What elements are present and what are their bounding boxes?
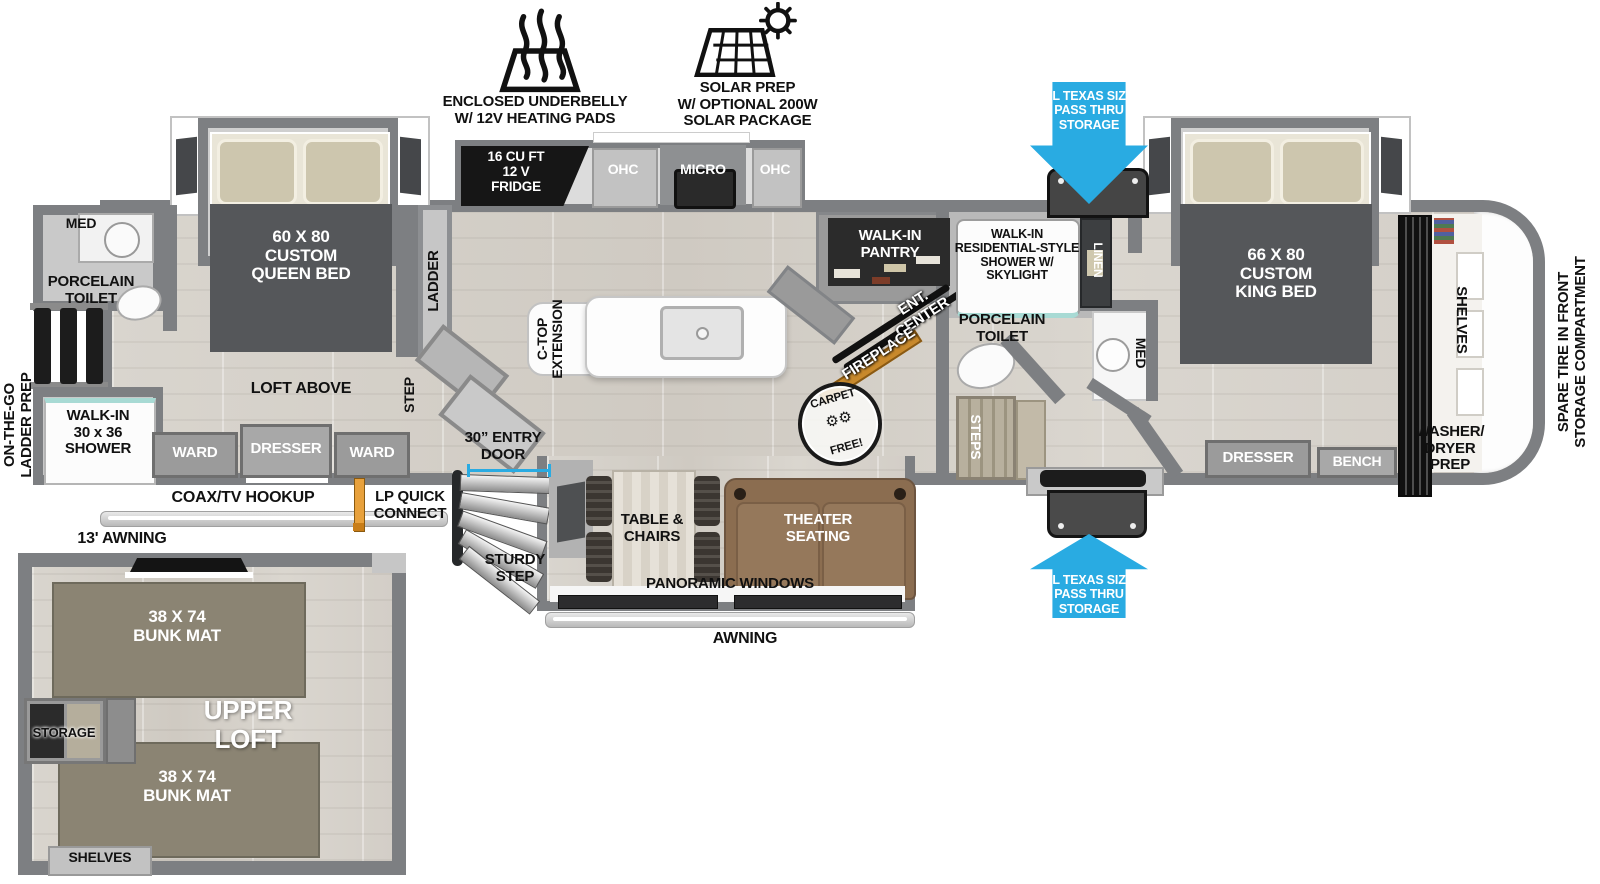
front-dresser: DRESSER [1205, 440, 1311, 478]
table-chairs-label: TABLE & CHAIRS [602, 512, 702, 545]
on-the-go-label: ON-THE-GO LADDER PREP [2, 339, 38, 511]
ohc-left-label: OHC [592, 162, 654, 177]
front-toilet-label: PORCELAIN TOILET [946, 312, 1058, 345]
queen-bed-label: 60 X 80 CUSTOM QUEEN BED [226, 228, 376, 284]
linen-label: LINEN [1084, 230, 1104, 290]
loft-window [130, 558, 248, 572]
ward-left-label: WARD [155, 445, 235, 462]
ohc-right [752, 148, 802, 208]
lp-connector-icon [354, 478, 365, 532]
panoramic-window-right [734, 595, 902, 609]
front-med-sink [1096, 338, 1130, 372]
queen-room-wall-left [163, 205, 177, 331]
sturdy-step-label: STURDY STEP [470, 552, 560, 585]
solar-prep-icon [694, 2, 798, 80]
step-label: STEP [402, 356, 420, 434]
ward-left: WARD [152, 432, 238, 478]
coax-label: COAX/TV HOOKUP [168, 489, 318, 507]
front-shower-label: WALK-IN RESIDENTIAL-STYLE SHOWER W/ SKYL… [952, 228, 1082, 283]
bench-label: BENCH [1320, 454, 1394, 469]
queen-pillow-right [303, 139, 383, 205]
cupholder-icon [894, 488, 906, 500]
loft-storage-label: STORAGE [22, 726, 106, 740]
heating-pads-icon [492, 6, 588, 94]
pass-thru-compartment-bottom [1047, 490, 1147, 538]
counter-top-trim [593, 132, 750, 143]
bench: BENCH [1317, 447, 1397, 478]
pantry-item [834, 269, 860, 278]
king-pillow-left [1190, 139, 1274, 205]
sink-drain [696, 327, 709, 340]
entry-door-measure-line [468, 469, 550, 472]
pantry-label: WALK-IN PANTRY [836, 228, 944, 261]
rear-shower-label: WALK-IN 30 x 36 SHOWER [40, 408, 156, 458]
loft-window-sill [125, 572, 253, 578]
pantry-item [884, 264, 906, 272]
rear-med-label: MED [52, 216, 110, 231]
front-dresser-label: DRESSER [1208, 450, 1308, 467]
ward-right-label: WARD [337, 445, 407, 462]
underbelly-label: ENCLOSED UNDERBELLY W/ 12V HEATING PADS [425, 94, 645, 127]
theater-label: THEATER SEATING [768, 512, 868, 545]
front-med-label: MED [1130, 326, 1148, 380]
ward-right: WARD [334, 432, 410, 478]
upper-loft-label: UPPER LOFT [178, 696, 318, 753]
queen-slide-window-right [400, 137, 421, 196]
rear-ladder-bars [30, 303, 108, 389]
queen-slide-window-left [176, 137, 197, 196]
washer-dryer-label: WASHER/ DRYER PREP [1398, 424, 1502, 474]
solar-label: SOLAR PREP W/ OPTIONAL 200W SOLAR PACKAG… [650, 80, 845, 130]
pass-thru-arrow-bottom: XL TEXAS SIZE PASS THRU STORAGE [1030, 534, 1148, 618]
ladder-label: LADDER [426, 234, 444, 328]
bunk-bottom-label: 38 X 74 BUNK MAT [122, 768, 252, 805]
rear-toilet-label: PORCELAIN TOILET [28, 274, 154, 307]
cupholder-icon [734, 488, 746, 500]
panoramic-label: PANORAMIC WINDOWS [630, 576, 830, 593]
ctop-extension-label: C-TOP EXTENSION [535, 293, 569, 385]
queen-room-wall-right [396, 205, 418, 357]
pass-thru-top-label: XL TEXAS SIZE PASS THRU STORAGE [1030, 89, 1148, 132]
island-sink [660, 306, 744, 360]
dresser-trim [246, 478, 328, 483]
spare-tire-label: SPARE TIRE IN FRONT STORAGE COMPARTMENT [1556, 246, 1592, 458]
king-pillow-right [1280, 139, 1364, 205]
shelf-box [1456, 368, 1484, 416]
awning-13-label: 13' AWNING [62, 530, 182, 548]
fridge-label: 16 CU FT 12 V FRIDGE [462, 150, 570, 195]
ohc-right-label: OHC [750, 162, 800, 177]
steps-label: STEPS [965, 397, 983, 477]
dinette-left-window [557, 482, 585, 543]
bunk-top-label: 38 X 74 BUNK MAT [112, 608, 242, 645]
closet-items [1434, 218, 1454, 244]
ohc-left [592, 148, 658, 208]
loft-above-label: LOFT ABOVE [238, 380, 364, 398]
king-slide-window-left [1149, 137, 1170, 196]
queen-pillow-left [217, 139, 297, 205]
pass-thru-bottom-label: XL TEXAS SIZE PASS THRU STORAGE [1030, 573, 1148, 616]
pass-thru-slot-bottom [1040, 470, 1146, 487]
king-bed-label: 66 X 80 CUSTOM KING BED [1200, 246, 1352, 302]
awning-label: AWNING [700, 630, 790, 648]
rear-dresser: DRESSER [240, 424, 332, 478]
loft-top-notch [372, 553, 406, 573]
lp-quick-label: LP QUICK CONNECT [368, 489, 452, 522]
loft-step [106, 698, 136, 764]
shelves-label: SHELVES [1449, 265, 1469, 375]
panoramic-window-left [558, 595, 718, 609]
entry-door-label: 30” ENTRY DOOR [452, 430, 554, 463]
king-slide-window-right [1381, 137, 1402, 196]
rear-dresser-label: DRESSER [243, 441, 329, 458]
rv-floorplan: ENCLOSED UNDERBELLY W/ 12V HEATING PADS … [0, 0, 1600, 884]
pantry-item [872, 277, 890, 284]
loft-shelves-label: SHELVES [52, 850, 148, 865]
micro-label: MICRO [660, 162, 746, 177]
awning-bar-main [545, 612, 915, 628]
